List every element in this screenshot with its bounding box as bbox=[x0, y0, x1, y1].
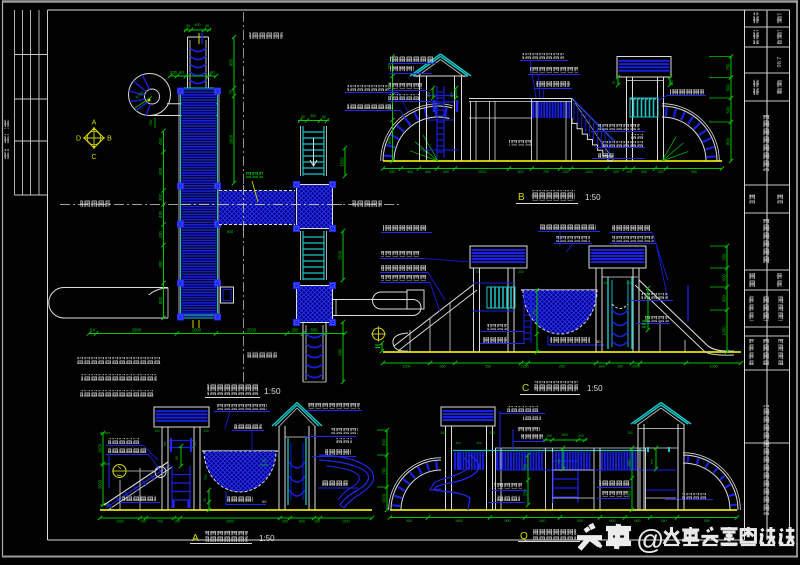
svg-text:250: 250 bbox=[485, 364, 491, 368]
svg-text:650: 650 bbox=[722, 294, 727, 302]
svg-text:260: 260 bbox=[282, 519, 288, 523]
svg-text:950: 950 bbox=[229, 58, 234, 66]
svg-text:70: 70 bbox=[229, 89, 234, 94]
svg-text:160: 160 bbox=[314, 519, 320, 523]
svg-text:300: 300 bbox=[310, 114, 316, 118]
svg-text:50: 50 bbox=[262, 499, 267, 504]
svg-text:2500: 2500 bbox=[247, 328, 257, 333]
svg-text:100: 100 bbox=[627, 431, 633, 435]
svg-text:@: @ bbox=[636, 524, 664, 555]
svg-text:B: B bbox=[518, 192, 525, 203]
svg-text:B: B bbox=[107, 136, 112, 143]
svg-text:600: 600 bbox=[599, 364, 605, 368]
svg-text:400: 400 bbox=[613, 170, 619, 174]
svg-text:400: 400 bbox=[194, 23, 200, 27]
svg-text:1800: 1800 bbox=[229, 134, 234, 144]
svg-text:1931: 1931 bbox=[342, 519, 350, 523]
svg-text:900: 900 bbox=[505, 519, 511, 523]
svg-text:260: 260 bbox=[559, 364, 565, 368]
svg-text:50: 50 bbox=[596, 339, 601, 344]
svg-text:750: 750 bbox=[204, 474, 208, 480]
svg-text:950: 950 bbox=[440, 364, 446, 368]
svg-text:700: 700 bbox=[157, 519, 163, 523]
svg-text:600: 600 bbox=[425, 170, 431, 174]
svg-text:1:50: 1:50 bbox=[264, 386, 281, 396]
svg-text:60: 60 bbox=[210, 70, 215, 75]
svg-text:750: 750 bbox=[523, 463, 528, 471]
svg-text:640: 640 bbox=[540, 519, 546, 523]
svg-text:Q: Q bbox=[520, 531, 528, 542]
svg-text:2000: 2000 bbox=[478, 170, 486, 174]
svg-text:100: 100 bbox=[546, 434, 552, 438]
svg-text:1000: 1000 bbox=[382, 493, 387, 503]
svg-text:1500: 1500 bbox=[340, 157, 345, 167]
svg-text:500: 500 bbox=[726, 84, 731, 92]
svg-text:950: 950 bbox=[691, 170, 697, 174]
svg-text:800: 800 bbox=[726, 137, 731, 145]
svg-text:40: 40 bbox=[205, 24, 209, 28]
svg-text:200: 200 bbox=[170, 70, 178, 75]
svg-text:600: 600 bbox=[562, 433, 568, 437]
svg-text:150: 150 bbox=[450, 92, 454, 98]
svg-text:800: 800 bbox=[387, 136, 392, 144]
svg-text:750: 750 bbox=[557, 459, 561, 464]
svg-text:200: 200 bbox=[578, 434, 584, 438]
svg-text:100: 100 bbox=[203, 429, 209, 433]
svg-text:600: 600 bbox=[338, 348, 343, 356]
svg-text:40: 40 bbox=[186, 24, 190, 28]
svg-text:2900: 2900 bbox=[132, 328, 142, 333]
svg-text:400: 400 bbox=[627, 459, 632, 467]
svg-text:950: 950 bbox=[704, 519, 710, 523]
svg-text:400: 400 bbox=[407, 170, 413, 174]
svg-text:500: 500 bbox=[641, 170, 647, 174]
svg-text:65: 65 bbox=[262, 459, 266, 463]
svg-text:750: 750 bbox=[650, 459, 654, 464]
svg-text:450: 450 bbox=[158, 137, 163, 145]
svg-text:1500: 1500 bbox=[98, 443, 103, 453]
svg-text:1:50: 1:50 bbox=[259, 534, 275, 543]
svg-text:750: 750 bbox=[726, 63, 731, 71]
svg-text:1000: 1000 bbox=[632, 364, 640, 368]
svg-text:600: 600 bbox=[635, 519, 641, 523]
svg-text:80: 80 bbox=[175, 456, 179, 460]
svg-text:430: 430 bbox=[158, 210, 163, 218]
svg-text:500: 500 bbox=[726, 106, 731, 114]
svg-text:100: 100 bbox=[154, 429, 160, 433]
svg-text:240: 240 bbox=[603, 281, 609, 285]
svg-text:1400: 1400 bbox=[585, 170, 593, 174]
svg-text:50: 50 bbox=[301, 115, 305, 119]
svg-text:200: 200 bbox=[440, 431, 446, 435]
svg-text:1500: 1500 bbox=[338, 250, 343, 260]
svg-text:900: 900 bbox=[577, 519, 583, 523]
svg-text:600: 600 bbox=[311, 328, 319, 333]
svg-text:50: 50 bbox=[322, 115, 326, 119]
svg-text:800: 800 bbox=[158, 167, 163, 175]
svg-text:300: 300 bbox=[158, 193, 163, 201]
svg-text:100: 100 bbox=[670, 80, 674, 86]
svg-text:700: 700 bbox=[163, 441, 167, 446]
svg-text:C: C bbox=[91, 154, 96, 161]
svg-text:2500: 2500 bbox=[226, 519, 234, 523]
svg-text:800: 800 bbox=[158, 260, 163, 268]
svg-text:250: 250 bbox=[427, 92, 431, 98]
svg-text:25: 25 bbox=[203, 498, 207, 502]
svg-text:430: 430 bbox=[158, 231, 163, 239]
svg-text:700: 700 bbox=[543, 170, 549, 174]
svg-text:160: 160 bbox=[617, 364, 623, 368]
svg-text:1050: 1050 bbox=[722, 326, 727, 336]
svg-text:1:50: 1:50 bbox=[585, 193, 601, 202]
svg-text:D: D bbox=[76, 136, 81, 143]
svg-text:700: 700 bbox=[382, 467, 387, 475]
svg-text:700: 700 bbox=[193, 441, 197, 446]
svg-text:250: 250 bbox=[563, 170, 569, 174]
svg-text:950: 950 bbox=[406, 519, 412, 523]
svg-text:2000: 2000 bbox=[98, 479, 103, 489]
svg-text:1000: 1000 bbox=[116, 519, 124, 523]
svg-text:250: 250 bbox=[658, 170, 664, 174]
svg-text:855: 855 bbox=[227, 230, 233, 234]
svg-text:200: 200 bbox=[518, 270, 524, 274]
svg-text:240: 240 bbox=[626, 281, 632, 285]
svg-text:C: C bbox=[522, 383, 529, 394]
svg-text:800: 800 bbox=[158, 296, 163, 304]
svg-text:1000: 1000 bbox=[710, 364, 718, 368]
svg-text:150: 150 bbox=[174, 519, 180, 523]
svg-text:1600: 1600 bbox=[455, 519, 463, 523]
svg-text:750: 750 bbox=[149, 120, 153, 126]
svg-text:600: 600 bbox=[299, 519, 305, 523]
svg-text:300: 300 bbox=[382, 438, 387, 446]
svg-text:70: 70 bbox=[612, 81, 616, 85]
svg-text:70: 70 bbox=[475, 270, 479, 274]
svg-text:500: 500 bbox=[518, 170, 524, 174]
svg-text:A: A bbox=[192, 533, 199, 544]
svg-text:950: 950 bbox=[389, 170, 395, 174]
svg-text:750: 750 bbox=[533, 309, 537, 315]
svg-text:140: 140 bbox=[661, 519, 667, 523]
svg-text:2250: 2250 bbox=[521, 364, 529, 368]
svg-text:A: A bbox=[92, 120, 97, 127]
svg-text:60: 60 bbox=[179, 70, 184, 75]
svg-text:98.7: 98.7 bbox=[777, 57, 783, 68]
svg-text:200: 200 bbox=[489, 431, 495, 435]
svg-text:600: 600 bbox=[610, 519, 616, 523]
svg-text:1000: 1000 bbox=[192, 328, 202, 333]
svg-text:150: 150 bbox=[140, 519, 146, 523]
svg-text:1:50: 1:50 bbox=[587, 384, 603, 393]
svg-text:150: 150 bbox=[626, 170, 632, 174]
svg-text:500: 500 bbox=[722, 273, 727, 281]
svg-text:550: 550 bbox=[722, 253, 727, 261]
svg-text:54: 54 bbox=[90, 328, 95, 333]
svg-text:1000: 1000 bbox=[403, 364, 411, 368]
svg-text:250: 250 bbox=[455, 441, 460, 445]
svg-text:250: 250 bbox=[476, 441, 481, 445]
svg-text:250: 250 bbox=[523, 488, 528, 496]
svg-text:400: 400 bbox=[443, 170, 449, 174]
svg-text:200: 200 bbox=[292, 328, 300, 333]
